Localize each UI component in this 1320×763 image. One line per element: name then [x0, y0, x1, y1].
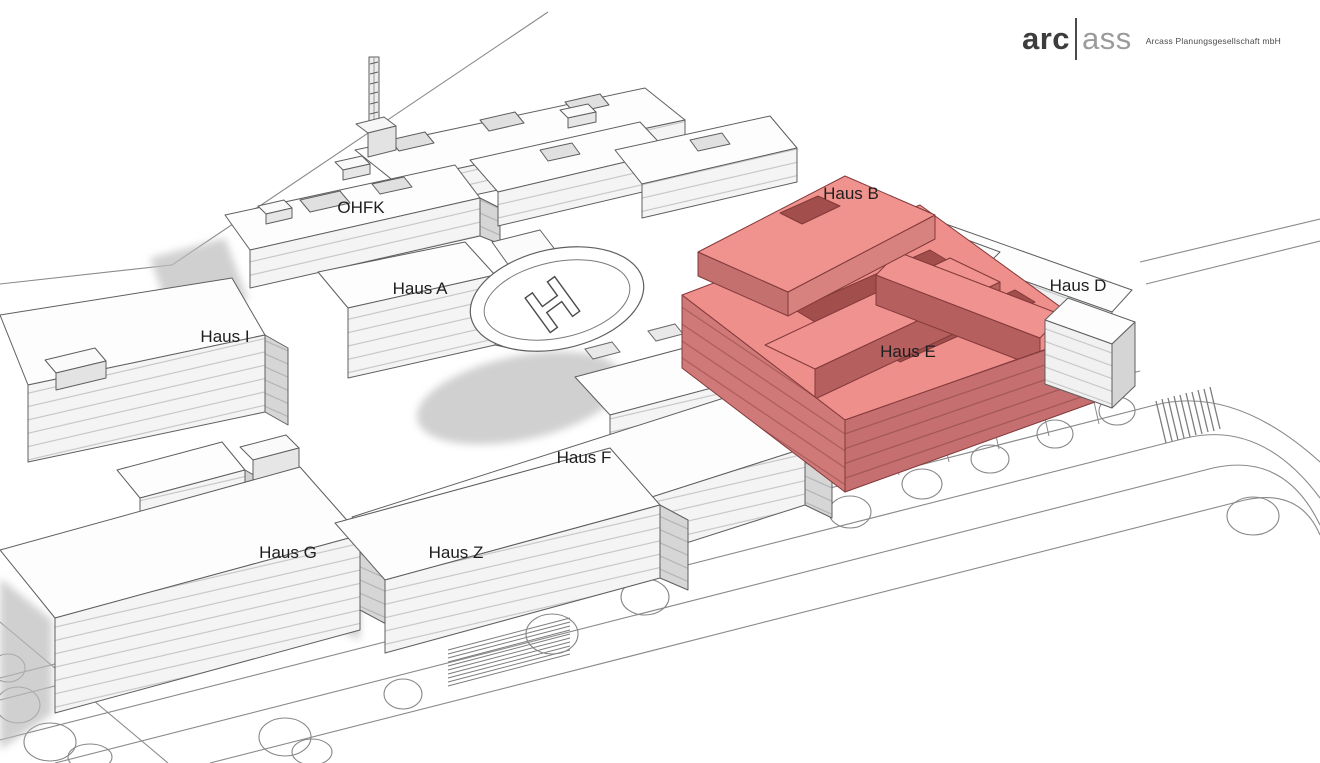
label-haus-e: Haus E [880, 342, 936, 361]
label-haus-i: Haus I [200, 327, 249, 346]
label-haus-b: Haus B [823, 184, 879, 203]
campus-3d-drawing: H [0, 0, 1320, 763]
label-haus-d: Haus D [1050, 276, 1107, 295]
label-haus-z: Haus Z [429, 543, 484, 562]
logo-text-arc: arc [1022, 16, 1070, 62]
label-haus-g: Haus G [259, 543, 317, 562]
building-haus-i [0, 278, 288, 462]
path-top-right-2 [1146, 241, 1320, 284]
helipad: H [461, 232, 683, 366]
path-top-right-1 [1140, 219, 1320, 262]
logo-tagline: Arcass Planungsgesellschaft mbH [1146, 36, 1281, 46]
label-haus-a: Haus A [393, 279, 448, 298]
side-face [265, 335, 288, 425]
site-plan-rendering: H [0, 0, 1320, 763]
label-haus-f: Haus F [557, 448, 612, 467]
logo-text-ass: ass [1082, 16, 1132, 62]
logo-wordmark: arc ass Arcass Planungsgesellschaft mbH [1022, 16, 1281, 62]
side-face [660, 505, 688, 590]
side-face [480, 198, 500, 244]
logo-divider-bar [1075, 18, 1077, 60]
arcass-logo: arc ass Arcass Planungsgesellschaft mbH [1022, 16, 1281, 62]
building-haus-z [335, 448, 688, 653]
label-ohfk: OHFK [337, 198, 385, 217]
chimney [356, 57, 396, 157]
pad-support [648, 324, 683, 341]
